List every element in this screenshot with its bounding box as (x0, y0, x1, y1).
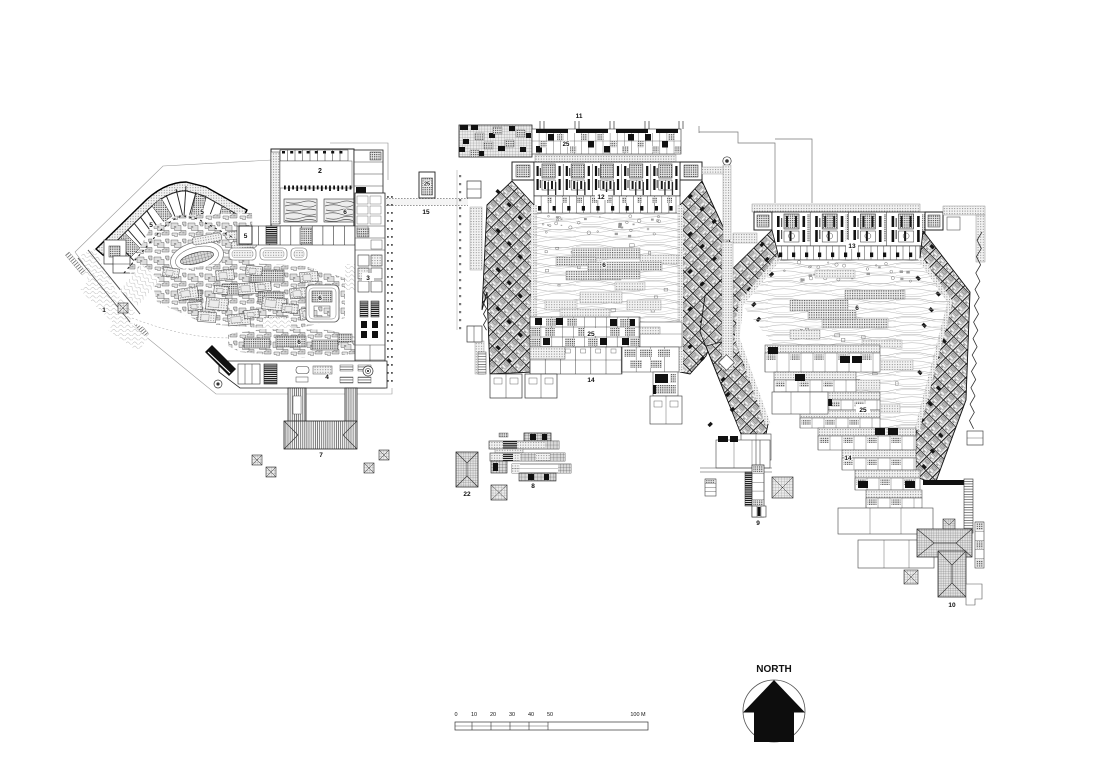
svg-text:6: 6 (297, 339, 301, 346)
svg-text:6: 6 (318, 295, 322, 302)
svg-text:5: 5 (244, 233, 248, 240)
svg-text:1: 1 (102, 307, 106, 314)
svg-text:25: 25 (859, 407, 867, 414)
svg-text:6: 6 (343, 209, 347, 216)
svg-text:14: 14 (587, 377, 595, 384)
svg-text:0: 0 (454, 712, 457, 718)
svg-text:25: 25 (424, 182, 430, 188)
svg-text:12: 12 (597, 194, 605, 201)
svg-text:14: 14 (844, 455, 852, 462)
svg-text:2: 2 (318, 168, 322, 175)
svg-text:30: 30 (509, 712, 515, 718)
svg-text:11: 11 (576, 113, 583, 120)
svg-text:40: 40 (528, 712, 534, 718)
svg-text:25: 25 (563, 142, 570, 148)
svg-text:7: 7 (319, 452, 323, 459)
svg-text:6: 6 (602, 262, 606, 269)
svg-text:3: 3 (366, 275, 370, 282)
svg-text:20: 20 (490, 712, 496, 718)
svg-text:15: 15 (422, 209, 430, 216)
svg-text:100 M: 100 M (630, 712, 646, 718)
svg-text:6: 6 (855, 305, 859, 312)
svg-text:NORTH: NORTH (756, 664, 792, 675)
svg-text:4: 4 (325, 374, 329, 381)
svg-text:9: 9 (756, 520, 760, 527)
svg-text:8: 8 (531, 483, 535, 490)
svg-text:10: 10 (948, 602, 956, 609)
svg-text:22: 22 (463, 491, 471, 498)
svg-text:13: 13 (848, 243, 856, 250)
svg-text:50: 50 (547, 712, 553, 718)
svg-text:10: 10 (471, 712, 477, 718)
svg-text:25: 25 (587, 331, 595, 338)
